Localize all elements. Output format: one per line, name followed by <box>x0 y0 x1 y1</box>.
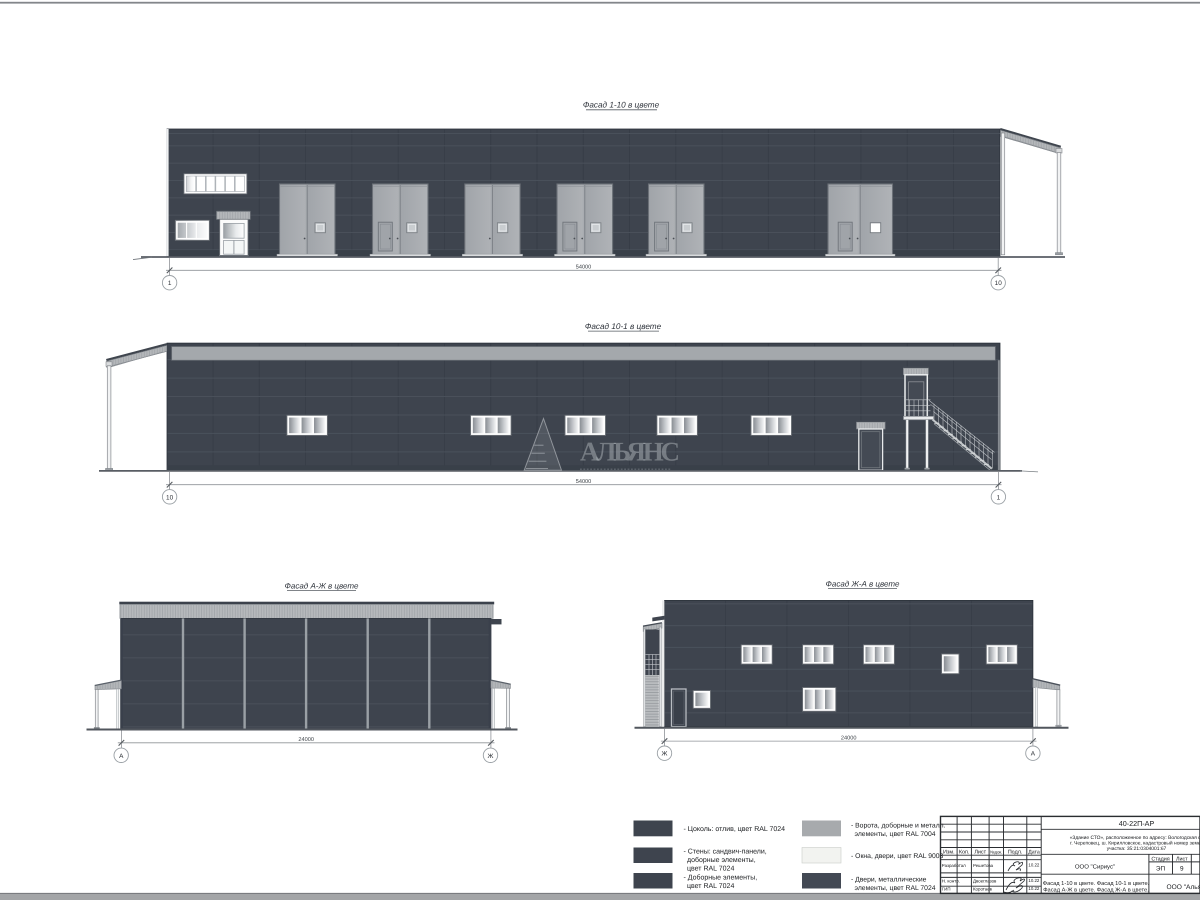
svg-text:24000: 24000 <box>841 735 857 741</box>
svg-text:ООО "Сириус": ООО "Сириус" <box>1075 864 1115 871</box>
svg-text:- Стены: сандвич-панели,: - Стены: сандвич-панели, <box>684 849 767 856</box>
svg-text:Изм.: Изм. <box>943 850 955 856</box>
svg-text:элементы, цвет RAL 7004: элементы, цвет RAL 7004 <box>855 831 936 838</box>
svg-text:10.22: 10.22 <box>1028 886 1040 891</box>
svg-text:цвет RAL 7024: цвет RAL 7024 <box>687 883 734 890</box>
svg-text:Подл.: Подл. <box>1008 850 1023 856</box>
svg-text:АЛЬЯНС: АЛЬЯНС <box>580 437 680 467</box>
svg-text:Стадия: Стадия <box>1151 856 1169 862</box>
svg-text:ЭП: ЭП <box>1156 866 1166 873</box>
svg-text:Коп.: Коп. <box>959 850 970 856</box>
svg-text:№док.: №док. <box>990 850 1002 855</box>
svg-text:Коротаев: Коротаев <box>973 887 993 892</box>
svg-text:9: 9 <box>1180 866 1184 873</box>
svg-text:- Ворота, доборные и металл.: - Ворота, доборные и металл. <box>851 822 946 829</box>
svg-text:ООО "Алья: ООО "Алья <box>1167 884 1200 891</box>
svg-text:Лист: Лист <box>974 850 986 856</box>
svg-text:Фасад А-Ж в цвете: Фасад А-Ж в цвете <box>285 581 359 590</box>
svg-text:40-22П-АР: 40-22П-АР <box>1119 819 1155 828</box>
svg-text:10.22: 10.22 <box>1028 878 1040 883</box>
svg-text:10: 10 <box>995 280 1003 287</box>
svg-text:Фасад 1-10 в цвете: Фасад 1-10 в цвете <box>583 101 660 110</box>
svg-text:10: 10 <box>166 494 174 501</box>
svg-text:- Цоколь: отлив, цвет RAL 7024: - Цоколь: отлив, цвет RAL 7024 <box>684 826 786 833</box>
svg-text:Двоеглазов: Двоеглазов <box>973 879 997 884</box>
svg-text:24000: 24000 <box>298 737 314 743</box>
svg-text:Дата: Дата <box>1028 850 1040 856</box>
svg-text:1: 1 <box>168 280 172 287</box>
svg-text:54000: 54000 <box>576 265 592 271</box>
svg-text:А: А <box>1031 751 1036 758</box>
svg-text:доборные элементы,: доборные элементы, <box>687 856 756 864</box>
svg-text:цвет RAL 7024: цвет RAL 7024 <box>687 866 734 873</box>
svg-text:г. Череповец, ш. Кирилловское,: г. Череповец, ш. Кирилловское, кадастров… <box>1070 841 1200 847</box>
svg-text:Фасад А-Ж в цвете. Фасад Ж-А в: Фасад А-Ж в цвете. Фасад Ж-А в цвете. <box>1043 888 1149 894</box>
svg-text:А: А <box>119 753 124 760</box>
svg-text:«Здание СТО», расположенное по: «Здание СТО», расположенное по адресу: В… <box>1070 835 1200 841</box>
svg-text:Фасад Ж-А в цвете: Фасад Ж-А в цвете <box>826 579 900 588</box>
svg-text:ГИП: ГИП <box>942 887 951 892</box>
svg-text:10.22: 10.22 <box>1028 863 1040 868</box>
svg-text:- Двери, металлические: - Двери, металлические <box>851 876 927 883</box>
svg-text:Ж: Ж <box>488 753 494 760</box>
svg-text:Ж: Ж <box>662 751 668 758</box>
svg-text:Н. контр.: Н. контр. <box>942 879 960 884</box>
svg-text:Фасад 10-1 в цвете: Фасад 10-1 в цвете <box>585 322 662 331</box>
svg-text:участка: 35:21:0304001:67: участка: 35:21:0304001:67 <box>1107 846 1167 852</box>
svg-text:Фасад 1-10 в цвете. Фасад 10-1: Фасад 1-10 в цвете. Фасад 10-1 в цвете. <box>1043 881 1150 887</box>
svg-text:- Окна, двери, цвет RAL 9003: - Окна, двери, цвет RAL 9003 <box>851 853 944 860</box>
svg-text:- Доборные элементы,: - Доборные элементы, <box>684 873 758 881</box>
svg-text:Решетова: Решетова <box>973 863 994 868</box>
svg-text:Разработал: Разработал <box>942 863 966 868</box>
svg-text:54000: 54000 <box>576 479 592 485</box>
svg-text:элементы, цвет RAL 7024: элементы, цвет RAL 7024 <box>855 885 936 892</box>
svg-text:Лист: Лист <box>1176 856 1188 862</box>
svg-text:1: 1 <box>997 494 1001 501</box>
